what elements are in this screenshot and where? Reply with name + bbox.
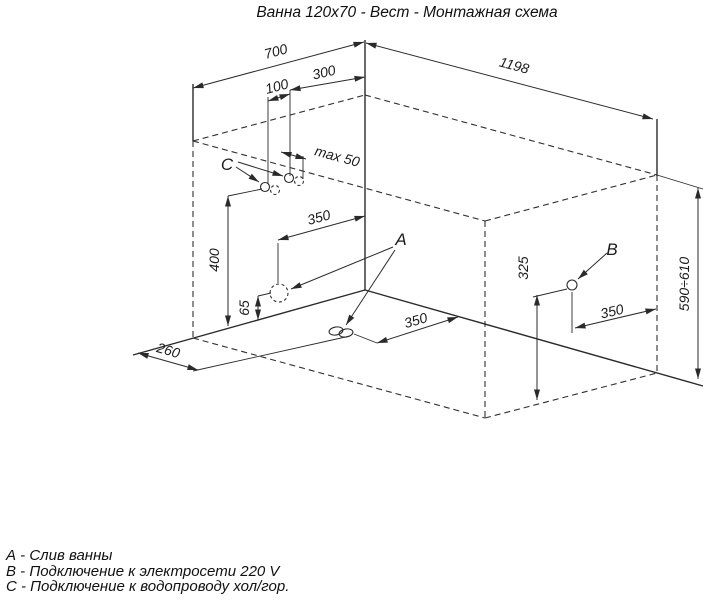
legend-line-a: А - Слив ванны xyxy=(5,547,112,564)
label-b-group: B xyxy=(578,240,618,279)
electric-outlet xyxy=(567,280,577,290)
dim-350-hole-label: 350 xyxy=(305,206,332,228)
legend: А - Слив ванны В - Подключение к электро… xyxy=(5,547,289,595)
montage-scheme: Ванна 120x70 - Вест - Монтажная схема 70… xyxy=(0,0,707,600)
dim-400: 400 xyxy=(206,189,262,326)
dim-400-label: 400 xyxy=(206,248,222,272)
dim-100-label: 100 xyxy=(263,75,290,97)
drawing-canvas: Ванна 120x70 - Вест - Монтажная схема 70… xyxy=(0,0,707,600)
legend-line-c: С - Подключение к водопроводу хол/гор. xyxy=(6,578,289,595)
dim-700-label: 700 xyxy=(262,40,289,62)
label-b: B xyxy=(606,240,617,259)
dim-325: 325 xyxy=(515,256,567,400)
dim-350-outlet: 350 xyxy=(572,292,656,333)
water-pipes xyxy=(261,174,304,195)
label-c-group: C xyxy=(221,155,283,182)
dim-max50: max 50 xyxy=(281,143,362,170)
dim-65-label: 65 xyxy=(236,300,252,316)
bathtub-hidden-edges xyxy=(193,95,657,418)
dim-300: 300 xyxy=(290,62,365,90)
dim-max50-label: max 50 xyxy=(313,143,362,170)
dim-350-outlet-label: 350 xyxy=(599,301,626,322)
dim-300-label: 300 xyxy=(311,62,338,83)
dim-65: 65 xyxy=(236,293,271,320)
dim-1198-label: 1198 xyxy=(498,54,531,77)
dim-height: 590÷610 xyxy=(676,188,698,379)
dim-325-label: 325 xyxy=(515,256,531,280)
label-a: A xyxy=(394,230,406,249)
drawing-title: Ванна 120x70 - Вест - Монтажная схема xyxy=(256,4,558,21)
label-c: C xyxy=(221,155,234,174)
dim-height-label: 590÷610 xyxy=(676,257,692,312)
dim-350-drain: 350 xyxy=(354,309,458,343)
pipe-extension-lines xyxy=(268,90,303,184)
dim-350-hole: 350 xyxy=(278,206,365,283)
label-a-group: A xyxy=(291,230,407,325)
dim-260: 260 xyxy=(138,336,350,371)
bathtub-visible-edges xyxy=(133,40,703,386)
dim-100: 100 xyxy=(263,75,290,101)
drain-hole-circle xyxy=(270,284,288,302)
